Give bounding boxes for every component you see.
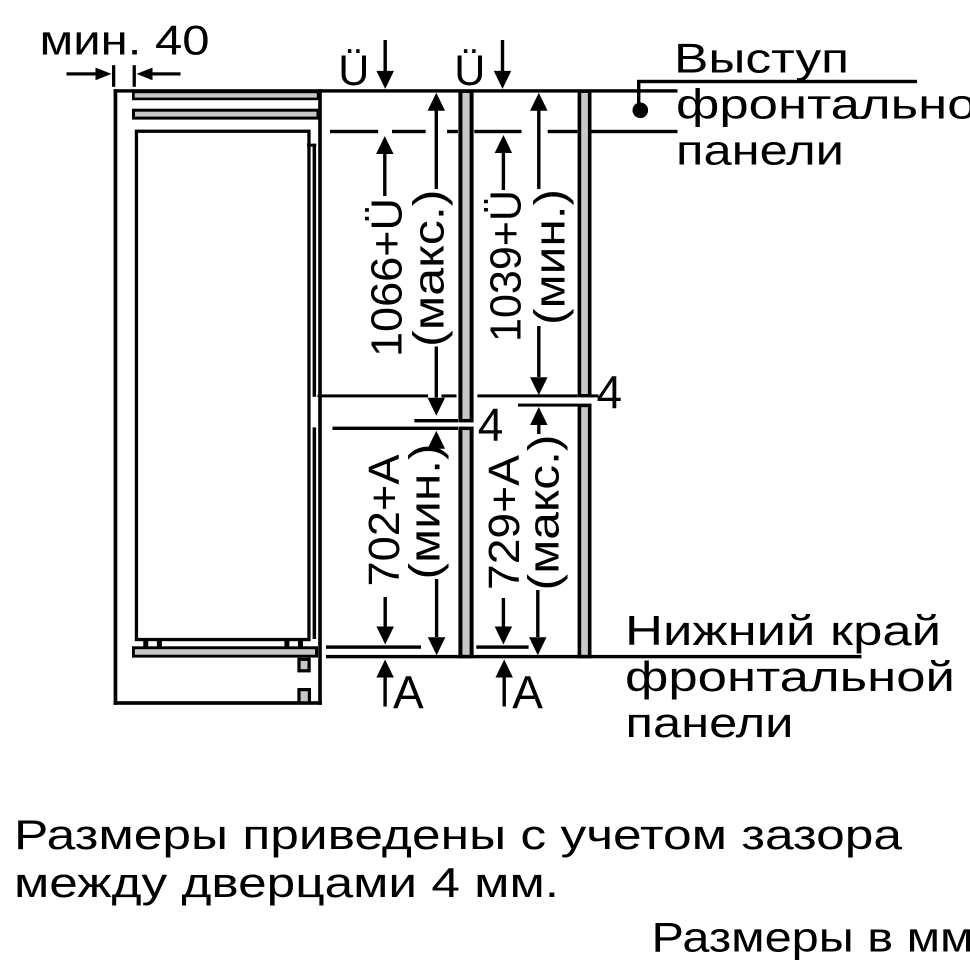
svg-text:панели: панели — [626, 699, 794, 746]
svg-text:Ü: Ü — [454, 47, 485, 95]
svg-text:Нижний край: Нижний край — [625, 607, 941, 654]
svg-text:фронтальной: фронтальной — [676, 81, 970, 128]
svg-text:(мин.): (мин.) — [401, 444, 450, 580]
svg-text:(макс.): (макс.) — [520, 435, 569, 591]
svg-text:4: 4 — [478, 399, 504, 451]
svg-text:фронтальной: фронтальной — [625, 653, 955, 700]
svg-text:Ü: Ü — [338, 47, 369, 95]
svg-text:A: A — [512, 667, 543, 719]
svg-text:панели: панели — [676, 127, 844, 174]
svg-text:между дверцами 4 мм.: между дверцами 4 мм. — [14, 859, 559, 906]
svg-text:мин. 40: мин. 40 — [40, 17, 210, 64]
svg-text:A: A — [393, 667, 424, 719]
svg-text:(мин.): (мин.) — [526, 189, 575, 325]
svg-text:1039+Ü: 1039+Ü — [482, 190, 531, 342]
svg-text:Выступ: Выступ — [674, 35, 849, 82]
svg-text:4: 4 — [597, 366, 623, 418]
svg-text:Размеры приведены с учетом заз: Размеры приведены с учетом зазора — [14, 811, 903, 858]
svg-text:(макс.): (макс.) — [405, 190, 454, 348]
svg-text:Размеры в мм: Размеры в мм — [652, 914, 970, 961]
